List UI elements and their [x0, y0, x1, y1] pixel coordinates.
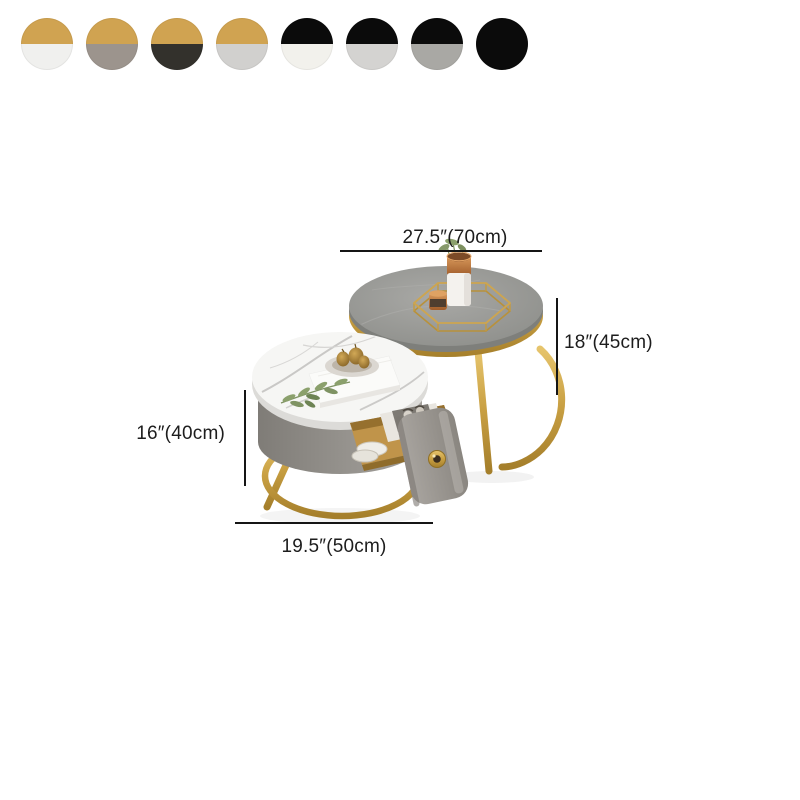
dimension-line-large-diameter: [340, 250, 542, 252]
drawer-knob: [429, 451, 446, 468]
small-table: [252, 332, 471, 524]
product-image: [0, 0, 800, 800]
dimension-line-small-height: [244, 390, 246, 486]
product-page: 27.5″(70cm) 18″(45cm) 16″(40cm) 19.5″(50…: [0, 0, 800, 800]
pinecone: [337, 352, 350, 367]
dimension-label-small-height: 16″(40cm): [100, 423, 225, 446]
pinecone: [359, 356, 370, 369]
dimension-label-small-diameter: 19.5″(50cm): [234, 536, 434, 559]
large-table-legs: [478, 349, 562, 471]
candle-jar: [429, 290, 447, 310]
dimension-label-large-height: 18″(45cm): [564, 332, 653, 355]
dimension-line-large-height: [556, 298, 558, 395]
dimension-line-small-diameter: [235, 522, 433, 524]
dimension-label-large-diameter: 27.5″(70cm): [355, 227, 555, 250]
